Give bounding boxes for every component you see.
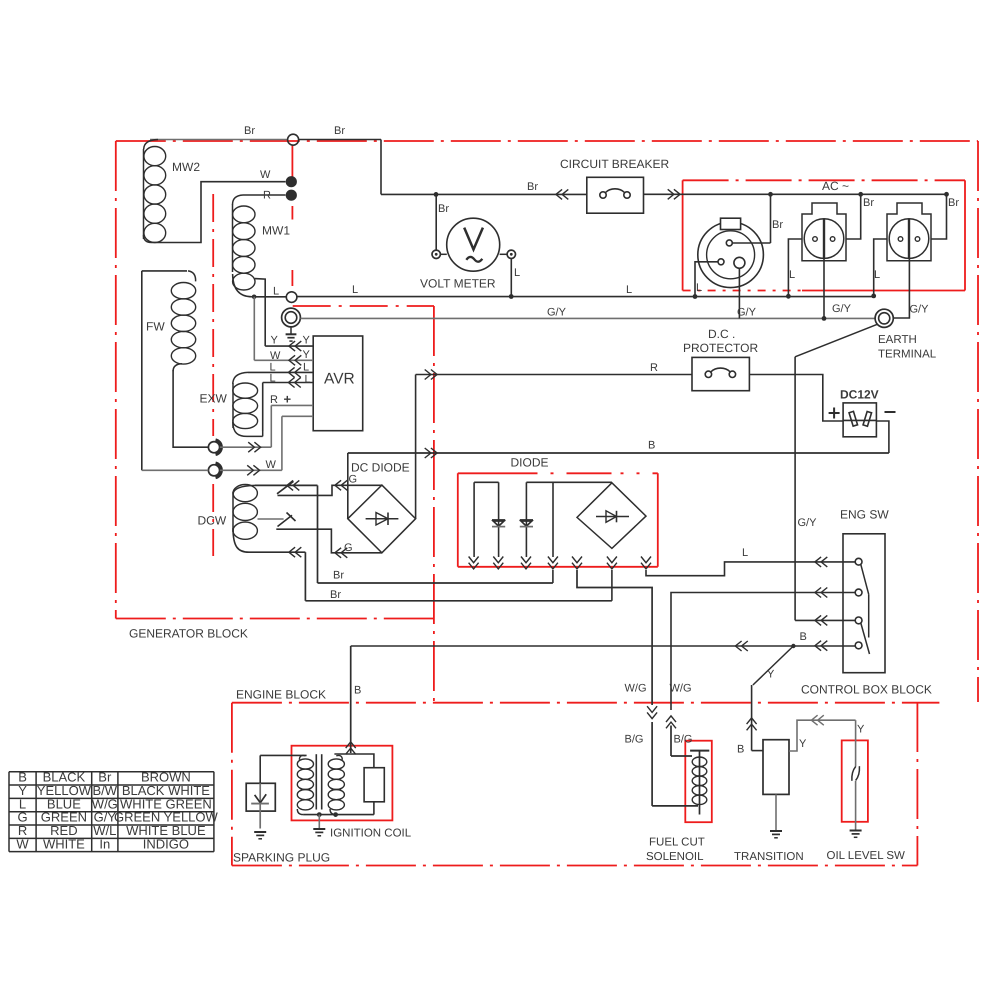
svg-text:L: L	[270, 373, 276, 385]
svg-text:Y: Y	[271, 335, 279, 347]
svg-text:IGNITION COIL: IGNITION COIL	[330, 828, 412, 840]
svg-text:TERMINAL: TERMINAL	[878, 349, 937, 361]
svg-text:AC ~: AC ~	[822, 179, 849, 193]
svg-text:WHITE: WHITE	[43, 836, 85, 851]
svg-text:CIRCUIT BREAKER: CIRCUIT BREAKER	[560, 157, 669, 171]
svg-text:Y: Y	[303, 335, 311, 347]
svg-text:B: B	[648, 440, 655, 452]
svg-text:EARTH: EARTH	[878, 334, 917, 346]
svg-text:Y: Y	[857, 724, 865, 736]
svg-text:G/Y: G/Y	[798, 517, 818, 529]
svg-text:G: G	[349, 474, 358, 486]
svg-text:CONTROL BOX BLOCK: CONTROL BOX BLOCK	[801, 683, 932, 697]
svg-text:L: L	[626, 284, 632, 296]
svg-text:G/Y: G/Y	[910, 303, 930, 315]
svg-text:W: W	[16, 836, 29, 851]
svg-text:MW1: MW1	[262, 224, 290, 238]
svg-text:L: L	[874, 269, 880, 281]
svg-text:B: B	[800, 631, 807, 643]
svg-text:L: L	[273, 286, 279, 298]
svg-text:AVR: AVR	[324, 371, 355, 388]
svg-text:G/Y: G/Y	[832, 303, 852, 315]
svg-text:R: R	[650, 362, 658, 374]
svg-text:Br: Br	[333, 570, 344, 582]
svg-text:Br: Br	[334, 125, 345, 137]
svg-text:L: L	[696, 282, 702, 294]
svg-text:In: In	[99, 836, 110, 851]
svg-text:Br: Br	[438, 203, 449, 215]
svg-text:DIODE: DIODE	[511, 456, 549, 470]
svg-text:ENG SW: ENG SW	[840, 508, 889, 522]
svg-text:MW2: MW2	[172, 160, 200, 174]
svg-text:FUEL CUT: FUEL CUT	[649, 837, 705, 849]
svg-text:L: L	[305, 374, 311, 386]
svg-text:R: R	[263, 190, 271, 202]
svg-text:Br: Br	[948, 197, 959, 209]
svg-text:W: W	[260, 169, 271, 181]
svg-text:B: B	[737, 744, 744, 756]
svg-text:DC DIODE: DC DIODE	[351, 461, 410, 475]
svg-text:L: L	[742, 547, 748, 559]
svg-text:DCW: DCW	[198, 514, 227, 528]
svg-text:L: L	[789, 269, 795, 281]
svg-text:W: W	[270, 350, 281, 362]
svg-text:G: G	[344, 542, 353, 554]
svg-text:Br: Br	[330, 589, 341, 601]
svg-text:Y: Y	[799, 738, 807, 750]
svg-text:B/G: B/G	[625, 734, 644, 746]
svg-text:SPARKING PLUG: SPARKING PLUG	[233, 851, 330, 865]
svg-text:L: L	[514, 267, 520, 279]
svg-text:G/Y: G/Y	[737, 307, 757, 319]
svg-text:EXW: EXW	[200, 392, 228, 406]
svg-text:W/G: W/G	[670, 683, 692, 695]
svg-text:Br: Br	[527, 181, 538, 193]
svg-text:PROTECTOR: PROTECTOR	[683, 341, 758, 355]
svg-text:Y: Y	[303, 349, 311, 361]
svg-text:W/G: W/G	[625, 683, 647, 695]
svg-text:L: L	[352, 284, 358, 296]
svg-text:R: R	[270, 394, 278, 406]
svg-text:Br: Br	[863, 197, 874, 209]
svg-text:GENERATOR BLOCK: GENERATOR BLOCK	[129, 627, 248, 641]
svg-text:Br: Br	[772, 219, 783, 231]
svg-text:W: W	[266, 459, 277, 471]
svg-text:DC12V: DC12V	[840, 388, 879, 402]
svg-text:B/G: B/G	[674, 734, 693, 746]
svg-text:TRANSITION: TRANSITION	[734, 851, 804, 863]
svg-text:+: +	[284, 392, 292, 407]
svg-text:VOLT METER: VOLT METER	[420, 277, 496, 291]
svg-text:L: L	[303, 362, 309, 374]
svg-text:FW: FW	[146, 320, 165, 334]
svg-text:OIL LEVEL SW: OIL LEVEL SW	[827, 850, 906, 862]
svg-text:Y: Y	[767, 669, 775, 681]
svg-text:SOLENOIL: SOLENOIL	[646, 851, 704, 863]
svg-text:G/Y: G/Y	[547, 307, 567, 319]
svg-text:D.C .: D.C .	[708, 327, 735, 341]
svg-text:B: B	[354, 685, 361, 697]
svg-text:INDIGO: INDIGO	[143, 836, 189, 851]
svg-text:Br: Br	[244, 125, 255, 137]
svg-text:ENGINE BLOCK: ENGINE BLOCK	[236, 688, 326, 702]
